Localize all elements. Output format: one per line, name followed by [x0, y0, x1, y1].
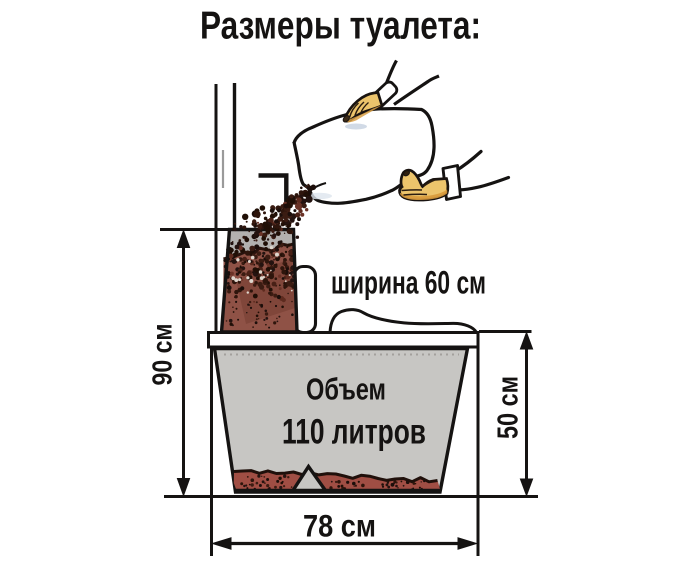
svg-text:90 см: 90 см [147, 324, 178, 386]
svg-text:Объем: Объем [306, 372, 386, 407]
svg-text:ширина 60 см: ширина 60 см [331, 265, 486, 301]
svg-text:78 см: 78 см [303, 508, 376, 544]
svg-text:50 см: 50 см [493, 376, 525, 439]
svg-text:Размеры туалета:: Размеры туалета: [200, 5, 481, 48]
svg-text:110 литров: 110 литров [282, 413, 426, 452]
